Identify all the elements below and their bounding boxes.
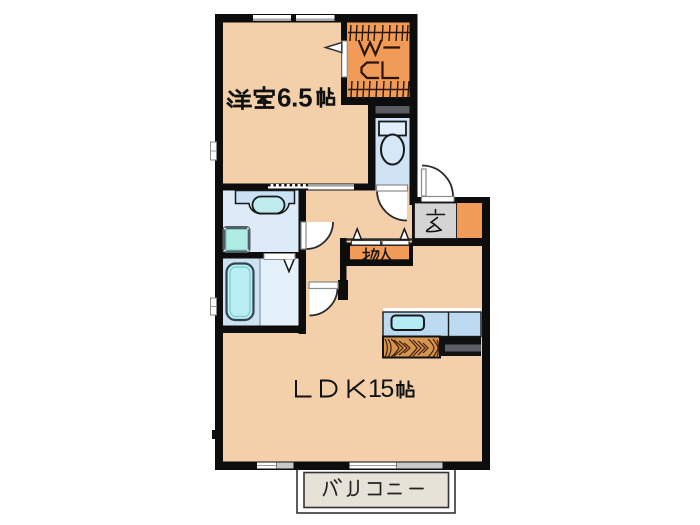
svg-text:15: 15: [368, 375, 393, 403]
svg-text:6.5: 6.5: [277, 83, 312, 113]
